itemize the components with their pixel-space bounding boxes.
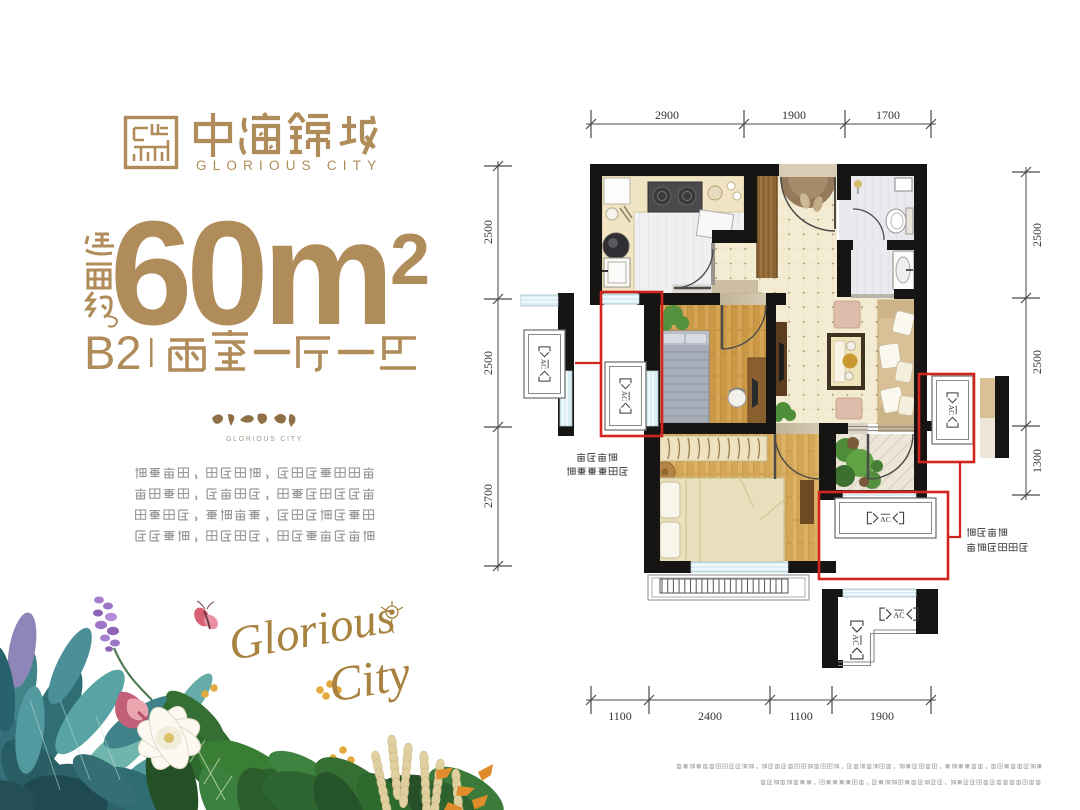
svg-text:2500: 2500 [481,351,495,375]
svg-text:2700: 2700 [481,484,495,508]
svg-text:1100: 1100 [608,709,632,723]
svg-text:2500: 2500 [1030,223,1044,247]
svg-text:GLORIOUS CITY: GLORIOUS CITY [196,158,382,173]
svg-text:1100: 1100 [789,709,813,723]
svg-text:1300: 1300 [1030,449,1044,473]
svg-text:60m: 60m [110,191,388,356]
svg-text:1900: 1900 [870,709,894,723]
svg-text:2500: 2500 [481,220,495,244]
svg-text:2: 2 [390,220,430,300]
svg-text:1900: 1900 [782,108,806,122]
svg-text:GLORIOUS CITY: GLORIOUS CITY [226,436,303,443]
svg-text:2400: 2400 [698,709,722,723]
svg-text:1700: 1700 [876,108,900,122]
svg-text:City: City [324,644,414,712]
svg-text:2900: 2900 [655,108,679,122]
svg-text:2500: 2500 [1030,350,1044,374]
svg-text:B2: B2 [84,326,142,379]
